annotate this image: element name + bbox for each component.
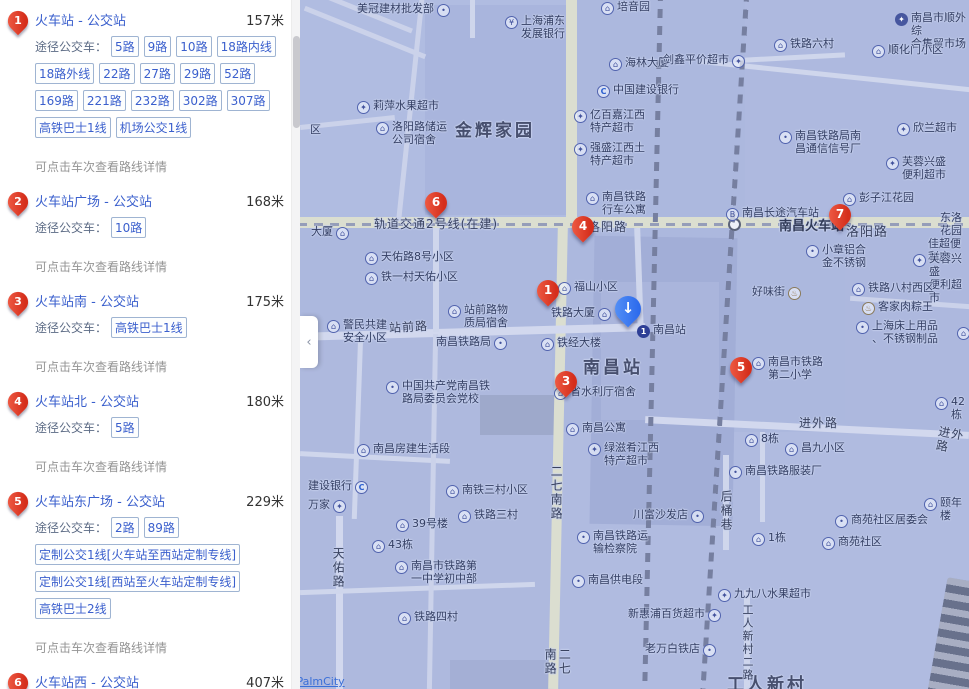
area-label: 南昌站 (583, 358, 643, 378)
list-pin-1: 1 (4, 7, 33, 36)
shop-icon: ✦ (732, 55, 745, 68)
building-icon: ⌂ (598, 308, 611, 321)
dot-icon: • (577, 531, 590, 544)
building-icon: ⌂ (365, 252, 378, 265)
station-distance: 157米 (246, 10, 284, 29)
bus-route-tag[interactable]: 302路 (179, 90, 222, 111)
area-label: 工人新村 (727, 675, 807, 689)
poi-label: ⌂铁经大楼 (541, 337, 601, 351)
poi-label: ⌂铁 (957, 326, 969, 340)
click-hint: 可点击车次查看路线详情 (35, 639, 284, 656)
panel-collapse-button[interactable]: ‹ (300, 316, 318, 368)
dot-icon: • (729, 466, 742, 479)
bus-routes: 途径公交车：10路 (35, 216, 284, 244)
poi-label: ⌂南昌铁路 行车公寓 (586, 191, 646, 217)
results-panel: 1火车站 - 公交站157米途径公交车：5路9路10路18路内线18路外线22路… (0, 0, 300, 689)
dot-icon: • (835, 515, 848, 528)
scrollbar-track[interactable] (291, 0, 300, 689)
road-label: 站前路 (389, 319, 429, 335)
shop-icon: ✦ (574, 143, 587, 156)
poi-label: ⌂铁一村天佑小区 (365, 271, 458, 285)
poi-label: •小章铝合 金不锈钢 (806, 244, 866, 270)
shop-icon: ✦ (333, 500, 346, 513)
road-label: 天佑路 (331, 547, 345, 589)
poi-label: ✦九九八水果超市 (718, 588, 811, 602)
poi-label: ⌂颐年楼 (924, 497, 969, 523)
road-label: 进外路 (935, 424, 969, 457)
list-pin-3: 3 (4, 288, 33, 317)
bus-route-tag[interactable]: 定制公交1线[火车站至西站定制专线] (35, 544, 240, 565)
bus-icon: B (726, 208, 739, 221)
market-icon: ✦ (895, 13, 908, 26)
bus-route-tag[interactable]: 高铁巴士2线 (35, 598, 111, 619)
map-marker-3[interactable]: 3 (550, 366, 581, 397)
building-icon: ⌂ (601, 2, 614, 15)
map-marker-5[interactable]: 5 (725, 352, 756, 383)
poi-label: ⌂43栋 (372, 539, 413, 553)
poi-label: 万家✦ (308, 499, 346, 513)
poi-label: ✦芙蓉兴盛 便利超市 (886, 156, 946, 182)
bus-route-tag[interactable]: 18路外线 (35, 63, 94, 84)
building-icon: ⌂ (872, 45, 885, 58)
bus-route-tag[interactable]: 169路 (35, 90, 78, 111)
map-marker-4[interactable]: 4 (567, 211, 598, 242)
poi-label: ⌂铁路三村 (458, 509, 518, 523)
poi-label: •商苑社区居委会 (835, 514, 928, 528)
road-label: 工人新村二路 (740, 604, 753, 682)
building-icon: ⌂ (372, 540, 385, 553)
poi-label: ✦芙蓉兴盛 便利超市 (913, 253, 969, 305)
metro-icon: 1 (637, 325, 650, 338)
building-icon: ⌂ (566, 423, 579, 436)
shop-icon: ✦ (588, 443, 601, 456)
poi-label: ✦莉萍水果超市 (357, 100, 439, 114)
bus-route-tag[interactable]: 5路 (111, 417, 139, 438)
station-distance: 168米 (246, 191, 284, 210)
station-name[interactable]: 火车站广场 - 公交站 (35, 191, 152, 210)
poi-label: ⌂彭子江花园 (843, 192, 914, 206)
poi-label: ⌂顺化门小区 (872, 44, 943, 58)
station-name[interactable]: 火车站南 - 公交站 (35, 291, 139, 310)
station-list: 1火车站 - 公交站157米途径公交车：5路9路10路18路内线18路外线22路… (0, 0, 300, 689)
poi-label: ⌂铁路四村 (398, 611, 458, 625)
dot-icon: • (779, 131, 792, 144)
poi-label: ⌂洛阳路储运 公司宿舍 (376, 121, 447, 147)
list-pin-4: 4 (4, 388, 33, 417)
poi-label: •南昌铁路服装厂 (729, 465, 822, 479)
building-icon: ⌂ (774, 39, 787, 52)
bus-routes: 途径公交车：2路89路定制公交1线[火车站至西站定制专线]定制公交1线[西站至火… (35, 516, 284, 625)
bus-routes: 途径公交车：高铁巴士1线 (35, 316, 284, 344)
map-marker-7[interactable]: 7 (824, 199, 855, 230)
poi-label: ⌂警民共建 安全小区 (327, 319, 387, 345)
building-icon: ⌂ (446, 485, 459, 498)
food-icon: ♨ (788, 287, 801, 300)
poi-label: 好味街♨ (752, 286, 801, 300)
dot-icon: • (437, 4, 450, 17)
buses-label: 途径公交车： (35, 521, 107, 535)
building-icon: ⌂ (336, 227, 349, 240)
road-label: 轨道交通2号线(在建) (374, 217, 498, 231)
poi-label: ⌂39号楼 (396, 518, 448, 532)
poi-label: ⌂8栋 (745, 433, 779, 447)
poi-label: ⌂南铁三村小区 (446, 484, 528, 498)
bus-route-tag[interactable]: 机场公交1线 (116, 117, 192, 138)
dot-icon: • (806, 245, 819, 258)
poi-label: •中国共产党南昌铁 路局委员会党校 (386, 380, 490, 406)
list-pin-5: 5 (4, 488, 33, 517)
baidu-map-page: 美冠建材批发部•¥上海浦东 发展银行⌂培音园✦南昌市顺外综 合集贸市场⌂铁路六村… (0, 0, 969, 689)
poi-label: ⌂商苑社区 (822, 536, 882, 550)
poi-label: ⌂1栋 (752, 532, 786, 546)
building-icon: ⌂ (745, 434, 758, 447)
ccb-icon: C (355, 481, 368, 494)
poi-label: ⌂天佑路8号小区 (365, 251, 454, 265)
station-result-1: 1火车站 - 公交站157米途径公交车：5路9路10路18路内线18路外线22路… (0, 10, 300, 175)
dot-icon: • (386, 381, 399, 394)
station-result-6: 6火车站西 - 公交站407米途径公交车：2路18路内线21路52路89路231… (0, 672, 300, 689)
buses-label: 途径公交车： (35, 40, 107, 54)
building-icon: ⌂ (785, 443, 798, 456)
poi-label: 川富沙发店• (633, 509, 704, 523)
station-name[interactable]: 火车站西 - 公交站 (35, 672, 139, 689)
shop-icon: ✦ (886, 157, 899, 170)
poi-label: ⌂培音园 (601, 1, 650, 15)
poi-label: ⌂南昌公寓 (566, 422, 626, 436)
shop-icon: ✦ (357, 101, 370, 114)
bus-route-tag[interactable]: 18路内线 (217, 36, 276, 57)
bus-route-tag[interactable]: 10路 (176, 36, 211, 57)
shop-icon: ✦ (708, 609, 721, 622)
bus-route-tag[interactable]: 9路 (144, 36, 172, 57)
bus-routes: 途径公交车：5路9路10路18路内线18路外线22路27路29路52路169路2… (35, 35, 284, 144)
station-name[interactable]: 火车站 - 公交站 (35, 10, 126, 29)
bus-route-tag[interactable]: 10路 (111, 217, 146, 238)
poi-label: 大厦⌂ (311, 226, 349, 240)
poi-label: 剑鑫平价超市✦ (663, 54, 745, 68)
building-icon: ⌂ (396, 519, 409, 532)
bus-route-tag[interactable]: 高铁巴士1线 (111, 317, 187, 338)
click-hint: 可点击车次查看路线详情 (35, 158, 284, 175)
poi-label: 南昌铁路局• (436, 336, 507, 350)
school-icon: ⌂ (395, 561, 408, 574)
building-icon: ⌂ (924, 498, 937, 511)
food-icon: ♨ (862, 302, 875, 315)
building-icon: ⌂ (586, 192, 599, 205)
poi-label: ⌂铁路六村 (774, 38, 834, 52)
building-icon: ⌂ (852, 283, 865, 296)
shop-icon: ✦ (718, 589, 731, 602)
school-icon: ⌂ (752, 357, 765, 370)
road-label: 二七南路 (543, 648, 571, 689)
building-icon: ⌂ (752, 533, 765, 546)
building-icon: ⌂ (365, 272, 378, 285)
poi-label: ✦强盛江西土 特产超市 (574, 142, 645, 168)
dot-icon: • (572, 575, 585, 588)
ccb-icon: C (597, 85, 610, 98)
building-icon: ⌂ (357, 444, 370, 457)
poi-label: ⌂站前路物 质局宿舍 (448, 304, 508, 330)
building-icon: ⌂ (558, 282, 571, 295)
building-icon: ⌂ (935, 397, 948, 410)
buses-label: 途径公交车： (35, 421, 107, 435)
palmcity-link[interactable]: PalmCity (296, 675, 344, 688)
poi-label: ⌂南昌市铁路 第二小学 (752, 356, 823, 382)
map-marker-6[interactable]: 6 (420, 187, 451, 218)
poi-label: 新惠浦百货超市✦ (628, 608, 721, 622)
area-label: 金辉家园 (455, 121, 535, 141)
poi-label: ✦绿滋肴江西 特产超市 (588, 442, 659, 468)
poi-label: ✦亿百嘉江西 特产超市 (574, 109, 645, 135)
bus-route-tag[interactable]: 定制公交1线[西站至火车站定制专线] (35, 571, 240, 592)
station-result-2: 2火车站广场 - 公交站168米途径公交车：10路可点击车次查看路线详情 (0, 191, 300, 275)
building-icon: ⌂ (609, 58, 622, 71)
road-label: 进外路 (799, 416, 838, 430)
poi-label: 老万白铁店• (645, 643, 716, 657)
station-name[interactable]: 火车站北 - 公交站 (35, 391, 139, 410)
bus-route-tag[interactable]: 307路 (227, 90, 270, 111)
poi-label: ⌂南昌市铁路第 一中学初中部 (395, 560, 477, 586)
map-marker-1[interactable]: 1 (532, 275, 563, 306)
bus-route-tag[interactable]: 221路 (83, 90, 126, 111)
shop-icon: ✦ (574, 110, 587, 123)
road-label: 后桶巷 (719, 490, 733, 532)
bus-route-tag[interactable]: 52路 (220, 63, 255, 84)
poi-label: •上海床上用品 、不锈钢制品 (856, 320, 938, 346)
building-icon: ⌂ (458, 510, 471, 523)
poi-label: ⌂南昌房建生活段 (357, 443, 450, 457)
poi-label: 区 (310, 124, 321, 137)
poi-label: ¥上海浦东 发展银行 (505, 15, 565, 41)
station-distance: 180米 (246, 391, 284, 410)
shop-icon: ✦ (913, 254, 926, 267)
road-label: 二七南路 (549, 465, 563, 521)
click-hint: 可点击车次查看路线详情 (35, 458, 284, 475)
poi-label: •南昌铁路局南 昌通信信号厂 (779, 130, 861, 156)
list-pin-2: 2 (4, 188, 33, 217)
bus-route-tag[interactable]: 5路 (111, 36, 139, 57)
station-name[interactable]: 火车站东广场 - 公交站 (35, 491, 165, 510)
poi-label: 建设银行C (308, 480, 368, 494)
buses-label: 途径公交车： (35, 321, 107, 335)
building-icon: ⌂ (822, 537, 835, 550)
list-pin-6: 6 (4, 669, 33, 689)
bus-route-tag[interactable]: 27路 (140, 63, 175, 84)
poi-label: ⌂铁路八村西区 (852, 282, 934, 296)
bus-route-tag[interactable]: 22路 (99, 63, 134, 84)
dot-icon: • (691, 510, 704, 523)
building-icon: ⌂ (541, 338, 554, 351)
building-icon: ⌂ (957, 327, 969, 340)
dot-icon: • (856, 321, 869, 334)
building-icon: ⌂ (398, 612, 411, 625)
bus-route-tag[interactable]: 232路 (131, 90, 174, 111)
bus-route-tag[interactable]: 89路 (144, 517, 179, 538)
poi-label: C中国建设银行 (597, 84, 679, 98)
poi-label: 铁路大厦⌂ (551, 307, 611, 321)
buses-label: 途径公交车： (35, 221, 107, 235)
bus-route-tag[interactable]: 29路 (180, 63, 215, 84)
bus-route-tag[interactable]: 2路 (111, 517, 139, 538)
poi-label: ♨客家肉粽王 (862, 301, 933, 315)
building-icon: ⌂ (327, 320, 340, 333)
station-result-5: 5火车站东广场 - 公交站229米途径公交车：2路89路定制公交1线[火车站至西… (0, 491, 300, 656)
yuan-icon: ¥ (505, 16, 518, 29)
poi-label: ⌂昌九小区 (785, 442, 845, 456)
station-distance: 175米 (246, 291, 284, 310)
bus-routes: 途径公交车：5路 (35, 416, 284, 444)
click-hint: 可点击车次查看路线详情 (35, 258, 284, 275)
bus-route-tag[interactable]: 高铁巴士1线 (35, 117, 111, 138)
building-icon: ⌂ (448, 305, 461, 318)
scrollbar-thumb[interactable] (293, 36, 300, 128)
station-distance: 229米 (246, 491, 284, 510)
station-distance: 407米 (246, 672, 284, 689)
poi-label: ✦欣兰超市 (897, 122, 957, 136)
station-result-3: 3火车站南 - 公交站175米途径公交车：高铁巴士1线可点击车次查看路线详情 (0, 291, 300, 375)
poi-label: ⌂海林大厦 (609, 57, 669, 71)
poi-label: •南昌供电段 (572, 574, 643, 588)
dot-icon: • (703, 644, 716, 657)
road-label: 洛阳路 (846, 225, 888, 240)
destination-marker[interactable]: ↓ (610, 291, 647, 328)
poi-label: ⌂福山小区 (558, 281, 618, 295)
poi-label: 1南昌站 (637, 324, 686, 338)
click-hint: 可点击车次查看路线详情 (35, 358, 284, 375)
station-result-4: 4火车站北 - 公交站180米途径公交车：5路可点击车次查看路线详情 (0, 391, 300, 475)
poi-label: •南昌铁路运 输检察院 (577, 530, 648, 556)
building-icon: ⌂ (376, 122, 389, 135)
shop-icon: ✦ (897, 123, 910, 136)
poi-label: ⌂42栋 (935, 396, 969, 422)
poi-label: 美冠建材批发部• (357, 3, 450, 17)
dot-icon: • (494, 337, 507, 350)
